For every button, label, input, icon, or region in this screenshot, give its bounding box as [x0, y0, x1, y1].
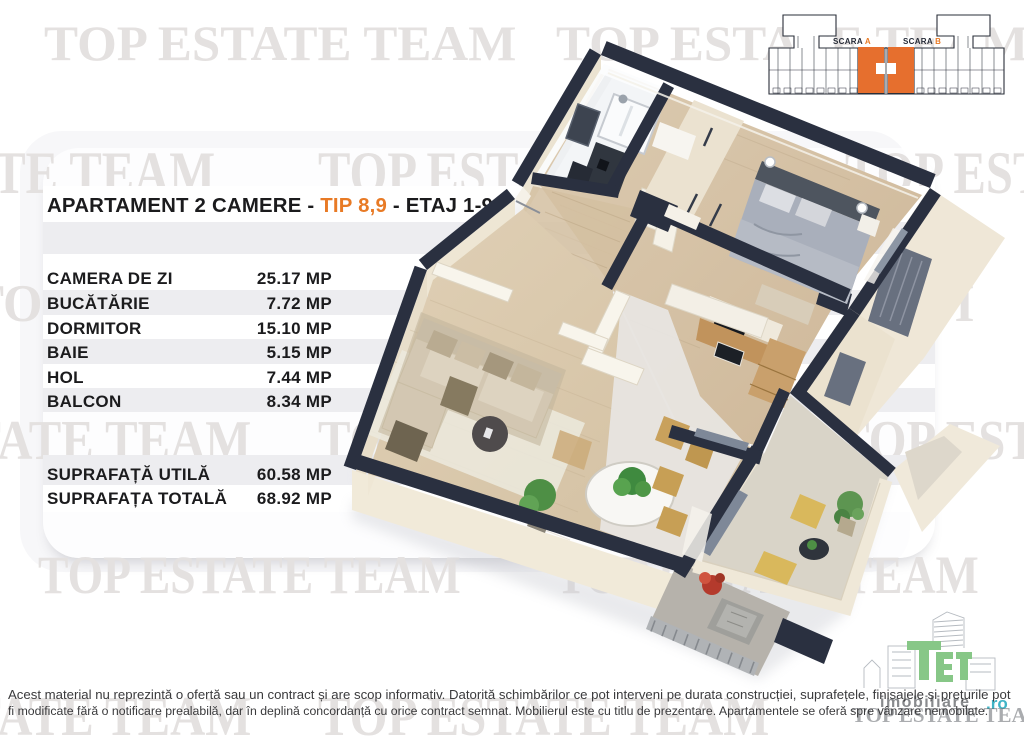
svg-text:SCARA B: SCARA B — [903, 37, 941, 46]
svg-text:SCARA A: SCARA A — [833, 37, 871, 46]
